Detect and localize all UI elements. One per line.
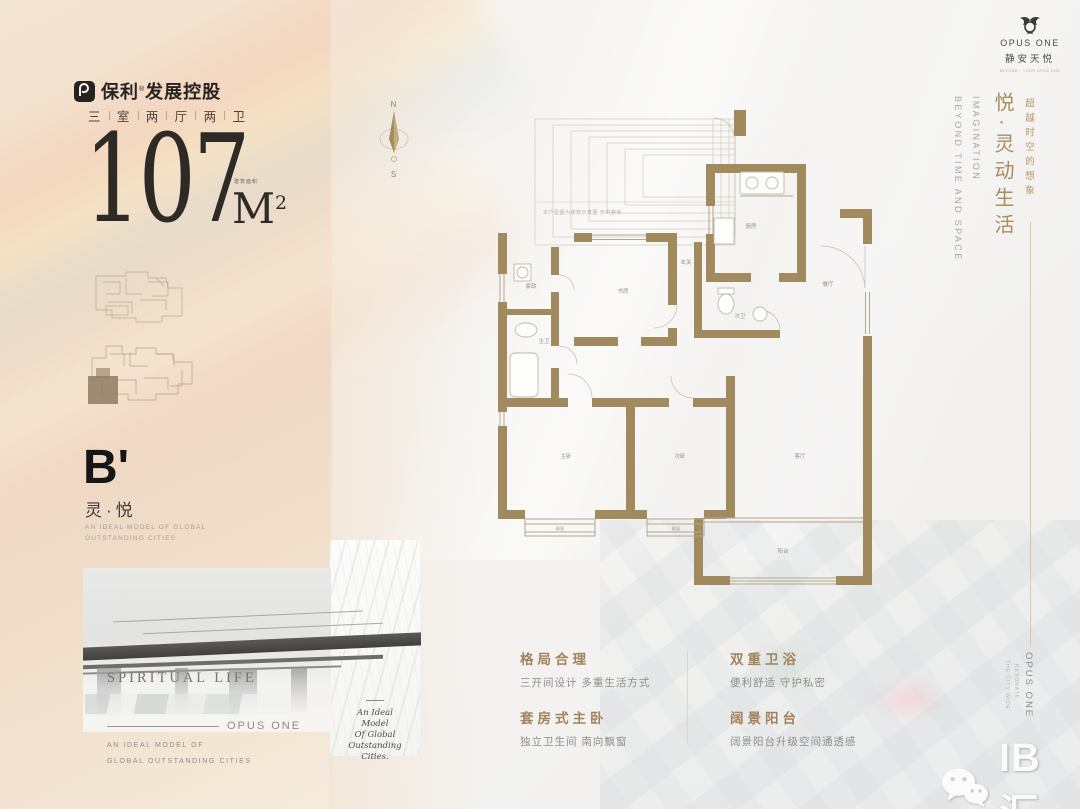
room-label-living: 客厅 — [794, 452, 806, 460]
feature-desc: 独立卫生间 南向飘窗 — [520, 734, 720, 749]
plan-fixtures — [510, 172, 784, 397]
feature-title: 套房式主卧 — [520, 707, 720, 727]
unit-caption-1: AN IDEAL MODEL OF GLOBAL — [85, 524, 207, 531]
area-block: 107 建筑面积 M2 — [84, 118, 304, 243]
brand-rule — [107, 726, 219, 727]
plan-walls — [498, 110, 872, 585]
poster-canvas: 保利®发展控股 三 室 两 厅 两 卫 107 建筑面积 M2 B' 灵·悦 A… — [0, 0, 1080, 809]
right-subline: 超越时空的想象 — [1021, 98, 1035, 200]
opus-one-logo-cn: 静安天悦 — [998, 51, 1062, 65]
architecture-photo: SPIRITUAL LIFE OPUS ONE AN IDEAL MODEL O… — [83, 568, 421, 780]
compass: N S — [378, 100, 410, 179]
room-label-balcony: 阳台 — [777, 547, 789, 555]
feature-desc: 阔景阳台升级空间通透感 — [730, 734, 930, 749]
unit-caption-2: OUTSTANDING CITIES — [85, 535, 176, 542]
plan-disclaimer: 本户型图为装修示意图 仅供参考 — [543, 209, 622, 216]
room-label-master-bath: 主卫 — [538, 337, 550, 345]
highlighted-unit-block — [88, 376, 118, 404]
unit-name: 灵·悦 — [85, 496, 137, 521]
building-key-plan-2 — [86, 340, 210, 412]
floor-plan: 本户型图为装修示意图 仅供参考 — [488, 106, 912, 598]
features-divider — [687, 652, 688, 744]
feature-title: 阔景阳台 — [730, 707, 930, 727]
compass-icon — [378, 109, 410, 165]
room-label-second: 次卧 — [674, 452, 686, 460]
feature-desc: 便利舒适 守护私密 — [730, 675, 930, 690]
area-unit: M2 — [232, 184, 287, 233]
right-headline: 悦·灵动生活 — [988, 92, 1017, 241]
right-small-text-1: RESONATE — [1013, 664, 1019, 699]
vertical-rule — [1030, 222, 1031, 646]
building-key-plan-1 — [92, 268, 204, 328]
room-label-utility: 家政 — [525, 282, 537, 290]
room-label-master: 主卧 — [560, 452, 572, 460]
room-label-study: 书房 — [617, 287, 629, 295]
plan-room-labels: 厨房 餐厅 客厅 阳台 主卧 次卧 书房 主卫 次卫 玄关 家政 飘窗 飘窗 — [525, 222, 834, 555]
opus-one-logo: OPUS ONE 静安天悦 BEYOND · YOUR OPUS ONE — [998, 16, 1062, 73]
compass-south-label: S — [378, 170, 410, 179]
room-label-second-bath: 次卫 — [734, 312, 746, 320]
room-label-bay1: 飘窗 — [556, 525, 564, 532]
brand-text: OPUS ONE — [227, 720, 301, 732]
poly-logo-text: 保利®发展控股 — [101, 78, 221, 104]
features-right-column: 双重卫浴 便利舒适 守护私密 阔景阳台 阔景阳台升级空间通透感 — [730, 648, 930, 749]
area-number: 107 — [84, 118, 247, 240]
watermark-text: IB汇 — [999, 736, 1080, 809]
right-english-1: IMAGINATION — [971, 96, 981, 181]
wechat-icon — [938, 765, 991, 809]
photo-caption-2: GLOBAL OUTSTANDING CITIES — [107, 758, 252, 765]
right-small-text-2: THE CITY WIDE — [1004, 660, 1010, 710]
unit-code: B' — [83, 440, 129, 495]
opus-one-emblem-icon — [1015, 16, 1045, 36]
room-label-dining: 餐厅 — [822, 280, 834, 288]
poly-logo: 保利®发展控股 — [74, 78, 221, 104]
stair-core — [535, 119, 735, 245]
photo-caption-1: AN IDEAL MODEL OF — [107, 742, 204, 749]
compass-north-label: N — [378, 100, 410, 109]
features-left-column: 格局合理 三开间设计 多重生活方式 套房式主卧 独立卫生间 南向飘窗 — [520, 648, 720, 749]
feature-desc: 三开间设计 多重生活方式 — [520, 675, 720, 690]
photo-brand-line: OPUS ONE — [107, 720, 301, 732]
opus-one-tagline: BEYOND · YOUR OPUS ONE — [998, 69, 1062, 73]
room-label-bay2: 飘窗 — [672, 525, 680, 532]
feature-title: 双重卫浴 — [730, 648, 930, 668]
shimmer-band — [85, 694, 291, 714]
room-label-kitchen: 厨房 — [745, 222, 757, 230]
right-english-2: BEYOND TIME AND SPACE — [953, 96, 963, 262]
right-opus-one-vertical: OPUS ONE — [1023, 652, 1034, 718]
watermark: IB汇 — [938, 736, 1080, 809]
poly-logo-icon — [74, 81, 95, 102]
feature-title: 格局合理 — [520, 648, 720, 668]
photo-title: SPIRITUAL LIFE — [107, 670, 257, 687]
opus-one-logo-text: OPUS ONE — [998, 38, 1062, 48]
room-label-foyer: 玄关 — [680, 258, 692, 266]
